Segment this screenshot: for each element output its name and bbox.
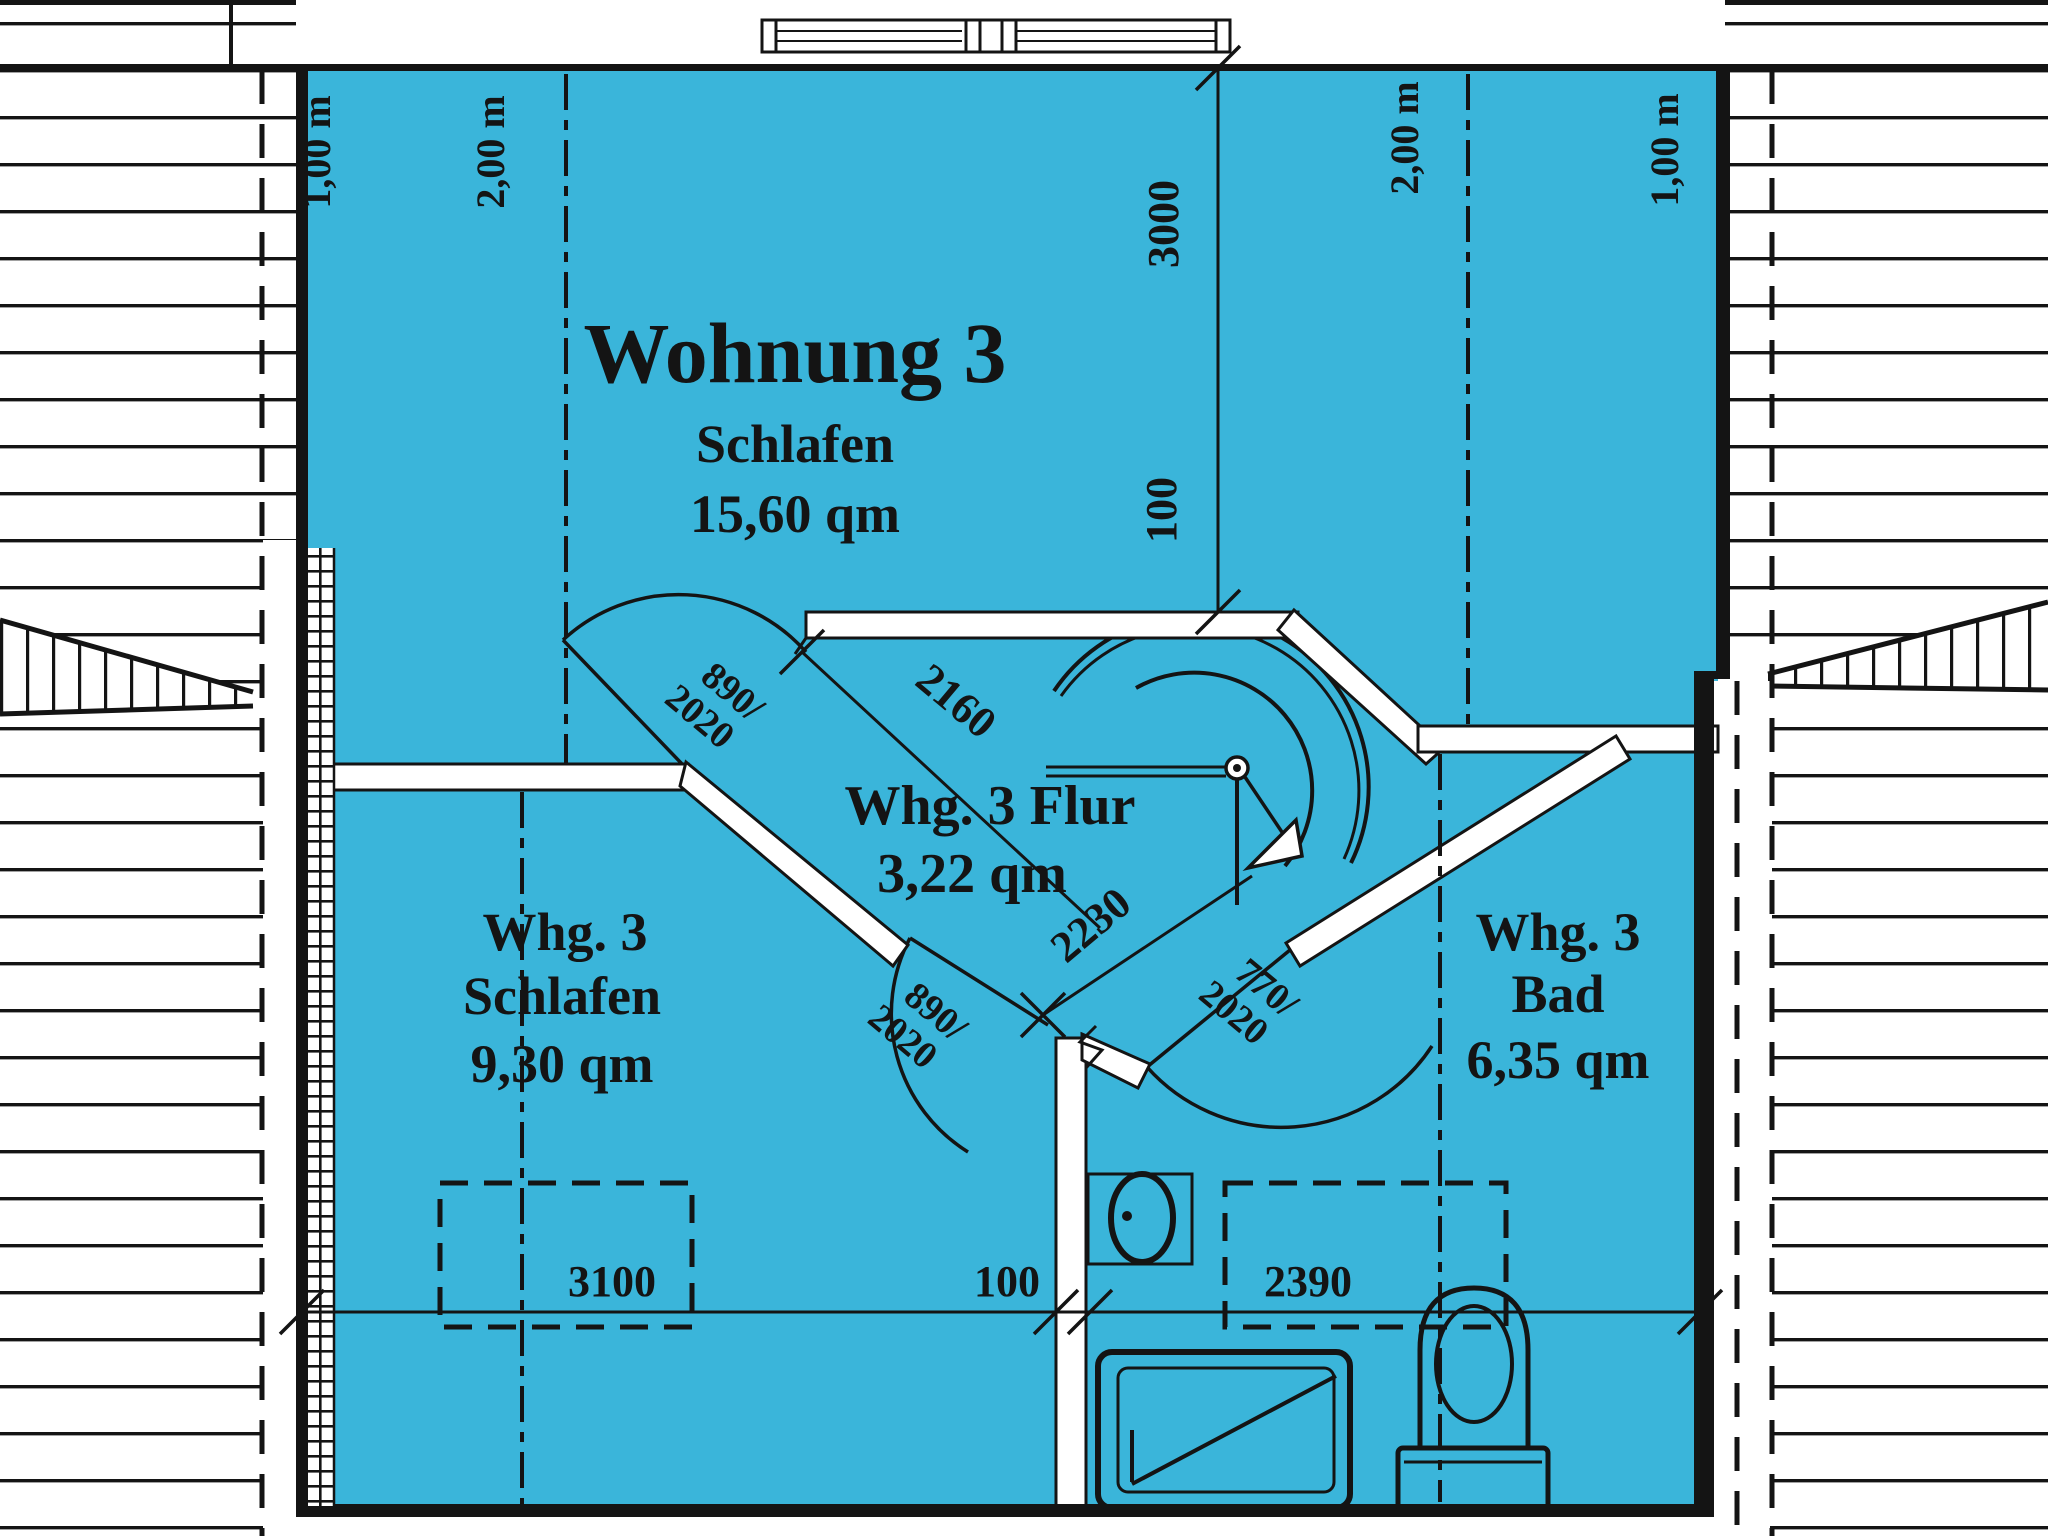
stair-newel-dot	[1233, 764, 1241, 772]
wall-horizontal-left	[306, 764, 688, 790]
room-area-bad: 6,35 qm	[1466, 1030, 1649, 1090]
floor-plan-wohnung-3: Wohnung 3 Schlafen 15,60 qm Whg. 3 Flur …	[0, 0, 2048, 1536]
room-unit-schlafen-klein: Whg. 3	[482, 902, 647, 962]
wall-flur-top	[806, 612, 1298, 638]
wall-horizontal-bad-north	[1418, 726, 1718, 752]
dim-label-100-bottom: 100	[974, 1257, 1040, 1306]
roof-hatch-right	[1725, 0, 2048, 1536]
knee-wall-left	[308, 548, 334, 1506]
height-label-2m-right: 2,00 m	[1382, 81, 1427, 194]
dim-label-100-top: 100	[1137, 477, 1186, 543]
room-unit-bad: Whg. 3	[1475, 902, 1640, 962]
room-title-wohnung-3: Wohnung 3	[583, 305, 1006, 401]
dim-label-2390: 2390	[1264, 1257, 1352, 1306]
room-area-schlafen-klein: 9,30 qm	[470, 1034, 653, 1094]
height-label-2m-left: 2,00 m	[468, 95, 513, 208]
wall-vertical-bad-west	[1056, 1038, 1086, 1512]
room-area-flur: 3,22 qm	[877, 843, 1067, 905]
dim-label-3000: 3000	[1139, 180, 1188, 268]
room-name-schlafen-gross: Schlafen	[696, 414, 894, 474]
height-label-1m-right: 1,00 m	[1642, 93, 1687, 206]
wall-right-upper	[1716, 64, 1730, 677]
room-area-schlafen-gross: 15,60 qm	[690, 484, 900, 544]
top-band-left-edge	[229, 5, 233, 64]
dim-label-3100: 3100	[568, 1257, 656, 1306]
wall-right-lower	[1694, 677, 1714, 1514]
roof-hatch-left	[0, 0, 296, 1536]
right-lower-outside	[1714, 681, 1772, 1512]
room-name-flur: Whg. 3 Flur	[845, 775, 1136, 837]
room-name-bad: Bad	[1511, 964, 1604, 1024]
room-name-schlafen-klein: Schlafen	[463, 966, 661, 1026]
height-label-1m-left: 1,00 m	[294, 95, 339, 208]
wall-left	[296, 64, 308, 1512]
